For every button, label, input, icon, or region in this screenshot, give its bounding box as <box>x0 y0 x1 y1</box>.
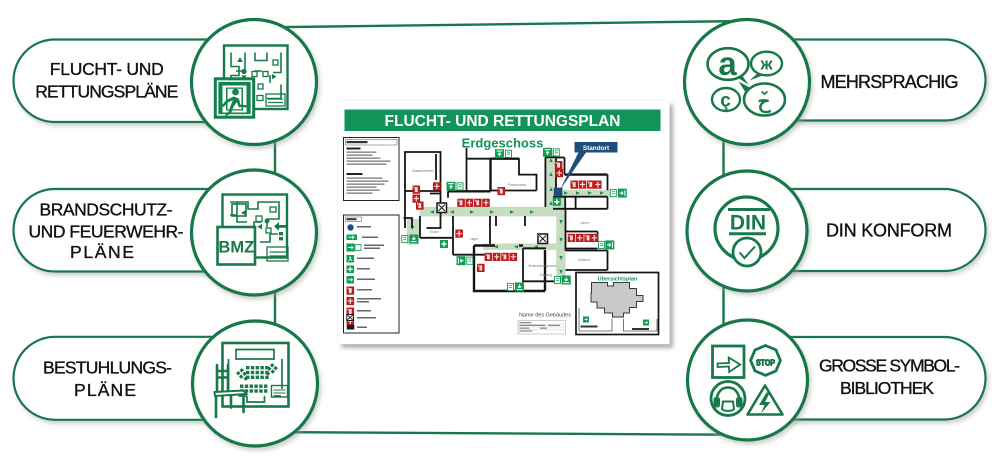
svg-text:MEHRSPRACHIG: MEHRSPRACHIG <box>821 72 959 92</box>
svg-text:Lager: Lager <box>470 237 479 241</box>
svg-text:Veranstaltungsraum: Veranstaltungsraum <box>528 264 557 268</box>
svg-text:GROSSE SYMBOL-: GROSSE SYMBOL- <box>819 356 960 376</box>
svg-text:Übersichtsplan: Übersichtsplan <box>598 276 638 283</box>
svg-text:PLÄNE: PLÄNE <box>70 242 134 262</box>
svg-text:BIBLIOTHEK: BIBLIOTHEK <box>840 378 934 398</box>
svg-text:Umkleid: Umkleid <box>578 258 590 262</box>
svg-text:Erdgeschoss: Erdgeschoss <box>462 136 544 151</box>
svg-text:a: a <box>718 45 737 82</box>
svg-text:PLÄNE: PLÄNE <box>74 380 136 400</box>
svg-text:ç: ç <box>720 91 731 112</box>
svg-text:Eingang: Eingang <box>540 273 552 277</box>
svg-text:Pausenraum: Pausenraum <box>508 183 526 187</box>
svg-text:STOP: STOP <box>756 359 776 368</box>
svg-text:BRANDSCHUTZ-: BRANDSCHUTZ- <box>40 200 173 220</box>
svg-text:FLUCHT- UND RETTUNGSPLAN: FLUCHT- UND RETTUNGSPLAN <box>385 113 621 130</box>
svg-text:BESTUHLUNGS-: BESTUHLUNGS- <box>43 357 172 377</box>
svg-text:FLUCHT- UND: FLUCHT- UND <box>50 59 164 79</box>
svg-text:DIN: DIN <box>730 212 766 235</box>
svg-text:Klassenzimmer: Klassenzimmer <box>412 169 435 173</box>
svg-text:Name des Gebäudes: Name des Gebäudes <box>519 313 571 319</box>
svg-text:BMZ: BMZ <box>218 239 254 257</box>
svg-text:DIN KONFORM: DIN KONFORM <box>826 221 952 241</box>
svg-text:Standort: Standort <box>583 145 610 152</box>
svg-text:RETTUNGSPLÄNE: RETTUNGSPLÄNE <box>35 82 178 102</box>
svg-text:Küche: Küche <box>430 230 439 234</box>
svg-text:UND FEUERWEHR-: UND FEUERWEHR- <box>29 221 184 241</box>
svg-text:ж: ж <box>759 55 773 74</box>
svg-text:Lehrer: Lehrer <box>580 221 590 225</box>
